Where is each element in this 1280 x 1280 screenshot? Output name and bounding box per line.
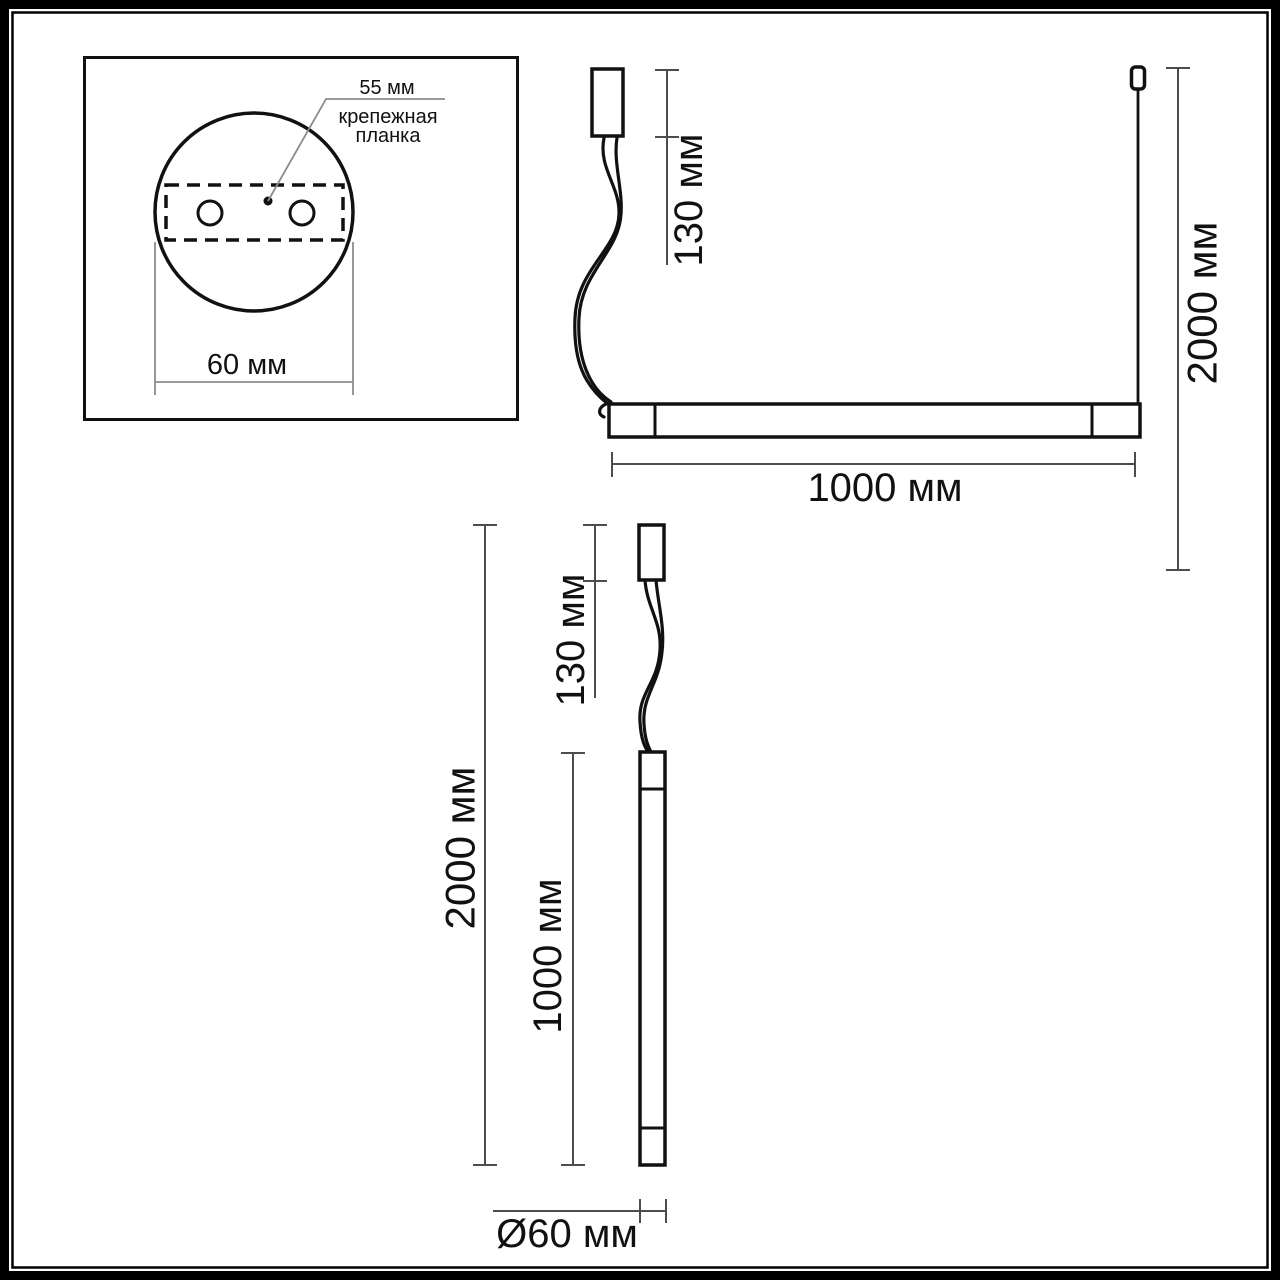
screw-hole-left	[198, 201, 222, 225]
v-fixture-length-label: 1000 мм	[526, 878, 570, 1033]
h-power-cable-strand2	[579, 138, 621, 402]
technical-drawing-page: 55 мм крепежная планка 60 мм	[0, 0, 1280, 1280]
h-light-bar	[609, 404, 1140, 437]
canopy-circle	[155, 113, 353, 311]
vertical-fixture-view: 130 мм 2000 мм 1000 мм Ø60 мм	[437, 525, 668, 1256]
canopy-diameter-label: 60 мм	[207, 349, 287, 381]
h-fixture-length-label: 1000 мм	[807, 466, 962, 510]
h-power-cable-hook	[600, 404, 606, 417]
horizontal-fixture-view: 130 мм 2000 мм 1000 мм	[575, 67, 1226, 570]
v-canopy-height-label: 130 мм	[549, 574, 593, 707]
mounting-plate-outline	[166, 185, 343, 240]
plate-name-line2: планка	[356, 125, 422, 147]
mount-detail-view: 55 мм крепежная планка 60 мм	[85, 58, 518, 420]
h-canopy	[592, 69, 623, 136]
h-suspension-height-label: 2000 мм	[1179, 222, 1226, 385]
plate-offset-label: 55 мм	[359, 77, 414, 99]
v-power-cable-strand2	[644, 580, 663, 752]
v-light-tube	[640, 752, 665, 1165]
v-canopy	[639, 525, 664, 580]
h-canopy-height-label: 130 мм	[667, 134, 711, 267]
h-power-cable-strand1	[575, 138, 619, 404]
v-tube-diameter-label: Ø60 мм	[496, 1212, 638, 1256]
v-suspension-height-label: 2000 мм	[437, 767, 484, 930]
h-wire-connector	[1132, 67, 1145, 89]
drawing-canvas: 55 мм крепежная планка 60 мм	[0, 0, 1280, 1280]
screw-hole-right	[290, 201, 314, 225]
